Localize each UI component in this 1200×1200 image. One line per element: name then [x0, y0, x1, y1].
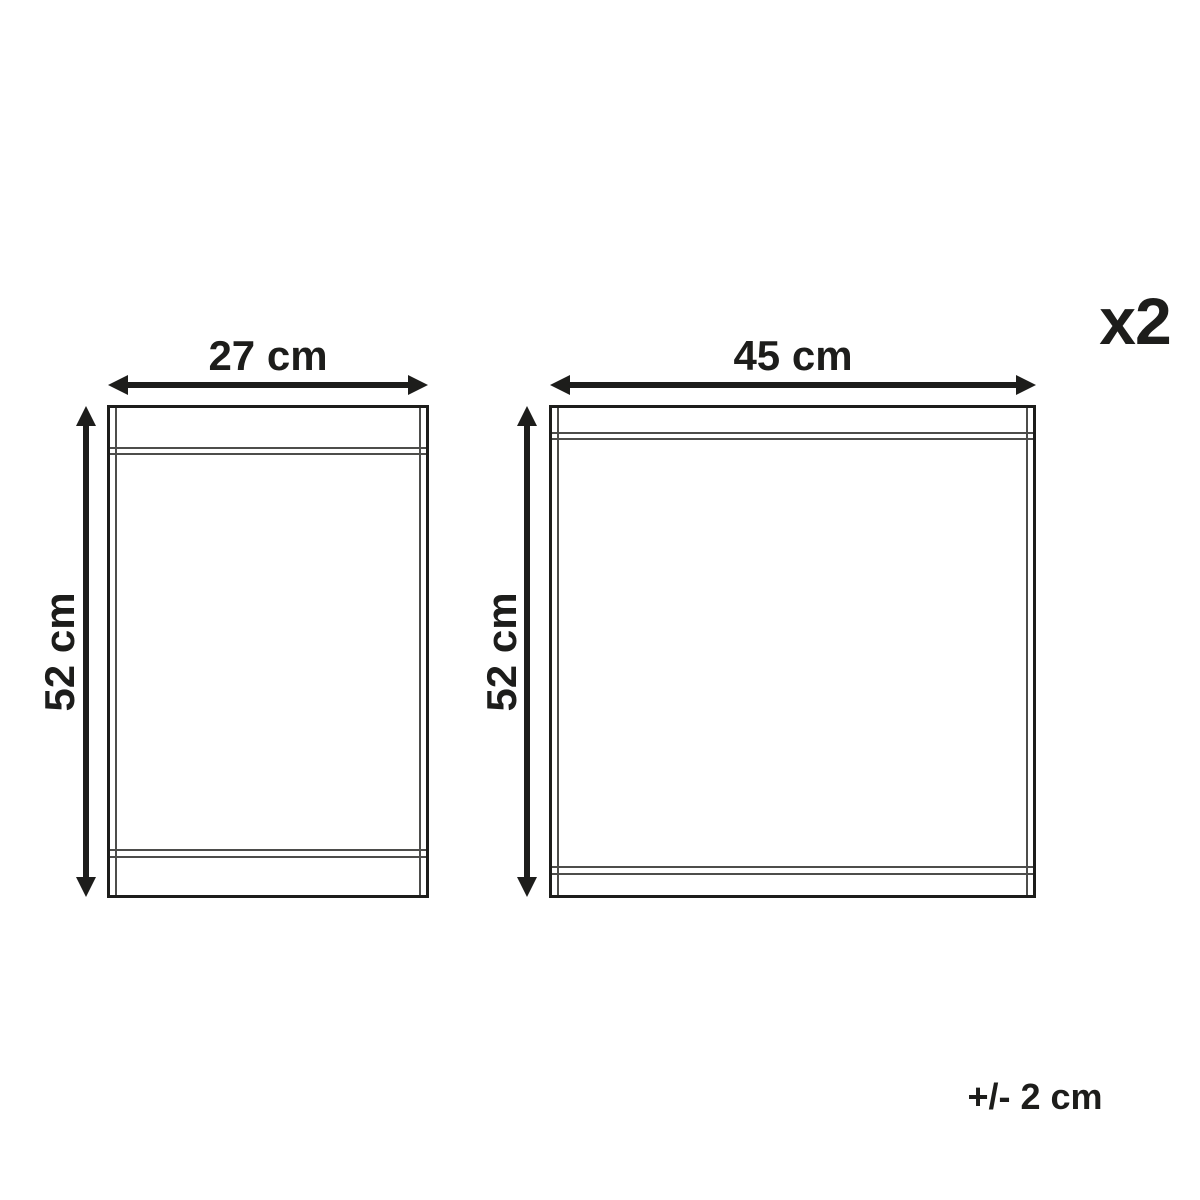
- width-arrow-large: [550, 375, 1036, 395]
- width-dimension-label-large: 45 cm: [550, 335, 1036, 377]
- bottom-hem-line: [552, 873, 1033, 875]
- bottom-hem-line: [110, 856, 426, 858]
- arrowhead-right-icon: [408, 375, 428, 395]
- arrow-shaft: [123, 382, 413, 388]
- left-hem-line: [115, 408, 117, 895]
- arrowhead-down-icon: [76, 877, 96, 897]
- right-hem-line: [1026, 408, 1028, 895]
- bottom-hem-line: [552, 866, 1033, 868]
- bottom-hem-line: [110, 849, 426, 851]
- top-hem-line: [552, 432, 1033, 434]
- right-hem-line: [419, 408, 421, 895]
- towel-outline-small: [107, 405, 429, 898]
- height-arrow-large: [517, 406, 537, 897]
- tolerance-label: +/- 2 cm: [925, 1079, 1145, 1115]
- towel-outline-large: [549, 405, 1036, 898]
- width-dimension-label-small: 27 cm: [108, 335, 428, 377]
- left-hem-line: [557, 408, 559, 895]
- arrow-shaft: [83, 421, 89, 882]
- top-hem-line: [552, 438, 1033, 440]
- arrow-shaft: [524, 421, 530, 882]
- height-arrow-small: [76, 406, 96, 897]
- width-arrow-small: [108, 375, 428, 395]
- top-hem-line: [110, 447, 426, 449]
- top-hem-line: [110, 453, 426, 455]
- arrow-shaft: [565, 382, 1021, 388]
- product-dimensions-diagram: x2 27 cm 52 cm 45 cm 52 cm: [0, 0, 1200, 1200]
- quantity-label: x2: [1060, 288, 1200, 354]
- arrowhead-down-icon: [517, 877, 537, 897]
- arrowhead-right-icon: [1016, 375, 1036, 395]
